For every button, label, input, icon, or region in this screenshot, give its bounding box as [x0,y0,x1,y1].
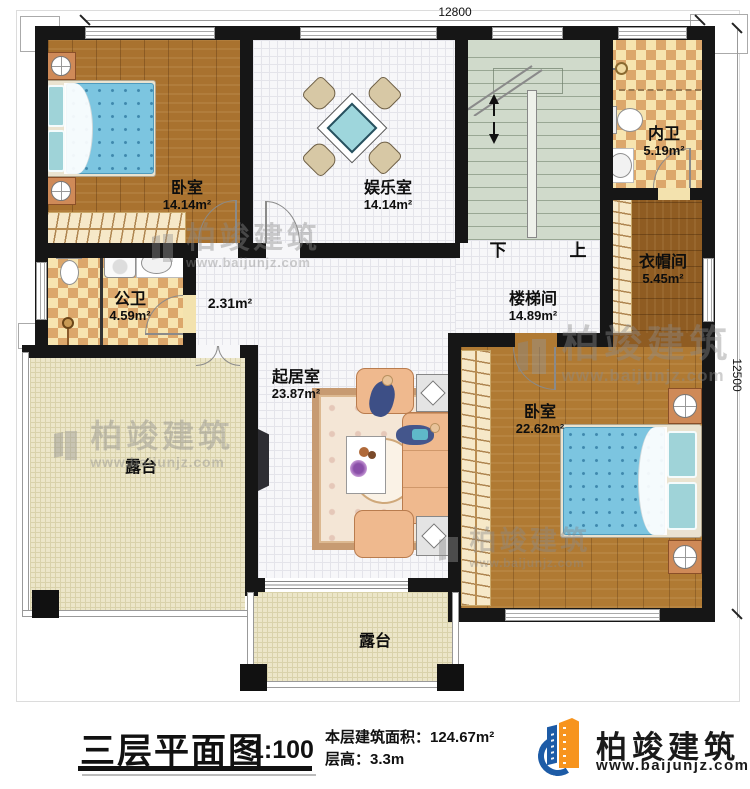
dimension-line-top [85,20,700,21]
window [85,27,215,39]
sliding-door [265,581,408,589]
door-gap [658,188,690,200]
room-label-public-bath: 公卫 4.59m² [109,291,150,323]
room-label-hallway: 2.31m² [208,296,252,312]
title-underline-shadow [82,774,316,776]
wall [183,258,196,295]
wall [35,243,198,258]
room-label-entertainment: 娱乐室 14.14m² [364,180,412,212]
company-logo-icon [538,716,590,778]
wall [408,578,461,592]
wall [300,243,460,258]
door-leaf [235,200,237,243]
window [36,262,47,320]
door-leaf [554,347,556,390]
armchair [354,510,414,558]
door-leaf [689,148,691,188]
floor-height-text: 层高：3.3m [325,748,404,769]
person-legs [412,429,428,440]
wardrobe [461,350,491,606]
flower-icon [350,460,367,477]
floor-area-text: 本层建筑面积：124.67m² [325,726,494,747]
side-table [416,516,452,556]
plan-scale: 1:100 [250,736,314,765]
dimension-top-value: 12800 [415,5,495,19]
nightstand [46,52,76,80]
mop-pole-knob [62,317,74,329]
stairs-down-label: 下 [490,236,507,261]
door-leaf [145,333,183,335]
toilet-icon [60,260,79,285]
wall [557,333,613,347]
pillow [667,482,697,530]
room-label-living: 起居室 23.87m² [272,369,320,401]
room-label-stairwell: 楼梯间 14.89m² [509,291,557,323]
wall [690,188,702,200]
room-label-terrace-left: 露台 [125,459,157,477]
terrace-wall [22,352,29,614]
stair-arrow-up-stem [493,103,495,116]
door-gap [183,295,196,333]
terrace-wall [247,681,459,688]
person-head [430,423,440,433]
stair-break-line [462,58,554,116]
stair-stringer [527,90,537,238]
pillow [667,431,697,478]
wall [455,26,468,243]
wall [245,578,265,592]
pillow [47,130,65,172]
room-label-bedroom1: 卧室 14.14m² [163,180,211,212]
towel-ring-icon [615,62,628,75]
door-gap [515,333,557,347]
side-table [416,374,450,412]
wall [22,345,196,358]
room-label-bedroom2: 卧室 22.62m² [516,404,564,436]
window [703,258,714,322]
bed-blanket [638,427,667,535]
toilet-icon [617,108,643,132]
wall [245,345,258,596]
door-leaf [265,201,267,243]
nightstand [46,177,76,205]
pillar [32,590,59,618]
person-head [382,375,393,386]
door-gap [266,243,300,258]
shower-curtain-line [619,89,701,91]
window [618,27,687,39]
pillar [437,664,464,691]
room-label-terrace-bottom: 露台 [359,633,391,651]
wall [600,188,658,200]
terrace-bottom-floor [252,592,454,682]
floor-plan: 12800 12500 [0,0,750,789]
nightstand [668,388,702,424]
room-label-cloakroom: 衣帽间 5.45m² [639,254,687,286]
wall [183,333,196,345]
nightstand [668,540,702,574]
bath-partition [100,250,103,345]
door-gap [613,333,702,347]
window [505,609,660,621]
wall [702,26,715,622]
flower-icon [368,451,376,459]
window [300,27,437,39]
pillar [240,664,267,691]
wardrobe [46,212,186,246]
pillow [47,85,65,127]
stairs-up-label: 上 [570,236,587,261]
wall [600,26,613,345]
wall [238,243,266,258]
stair-arrow-down [489,134,499,144]
window [492,27,563,39]
dimension-line-right [737,30,738,618]
dimension-right-value: 12500 [730,343,744,407]
company-url: www.baijunjz.com [596,757,749,774]
room-label-inner-bath: 内卫 5.19m² [643,126,684,158]
terrace-left-floor [30,352,245,614]
title-underline [78,766,312,771]
door-gap [198,243,238,258]
wall [240,26,253,243]
